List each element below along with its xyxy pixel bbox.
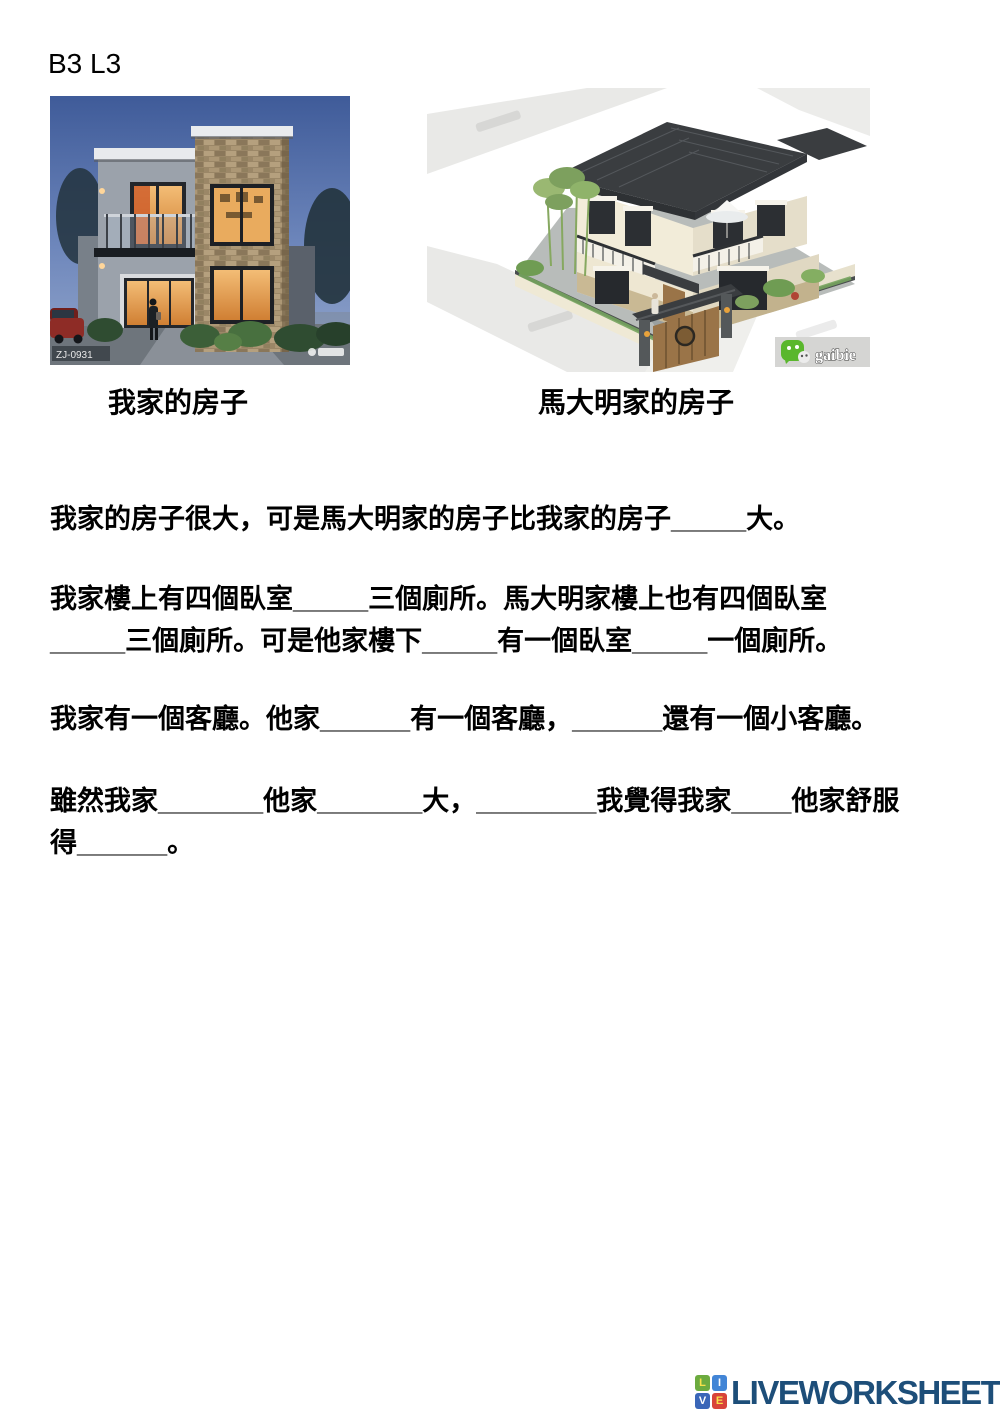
madaming-house-art: gaibie (427, 88, 870, 372)
render-person (652, 293, 659, 314)
passage-line-3: _____三個廁所。可是他家樓下_____有一個臥室_____一個廁所。 (50, 620, 970, 662)
my-house-photo-art: ZJ-0931 (50, 96, 350, 365)
photo-watermark: ZJ-0931 (56, 350, 93, 361)
logo-square-l: L (695, 1375, 710, 1391)
passage-line-2: 我家樓上有四個臥室_____三個廁所。馬大明家樓上也有四個臥室 (50, 578, 970, 620)
madaming-house-render: gaibie (427, 88, 870, 372)
my-house-photo: ZJ-0931 (50, 96, 350, 365)
logo-square-i: I (712, 1375, 727, 1391)
logo-square-e: E (712, 1393, 727, 1409)
worksheet-page: B3 L3 (0, 0, 1000, 1413)
gaibie-brand: gaibie (775, 337, 870, 367)
passage-line-6: 得______。 (50, 822, 970, 864)
liveworksheets-logo[interactable]: L I V E LIVEWORKSHEETS (695, 1373, 1000, 1411)
gaibie-text: gaibie (815, 347, 856, 364)
logo-square-v: V (695, 1393, 710, 1409)
lesson-label: B3 L3 (48, 48, 121, 80)
liveworksheets-grid-icon: L I V E (695, 1375, 727, 1409)
brand-wordmark: LIVEWORKSHEETS (731, 1376, 1000, 1409)
passage-line-5: 雖然我家_______他家_______大，________我覺得我家____他… (50, 780, 970, 822)
passage: 我家的房子很大，可是馬大明家的房子比我家的房子_____大。 我家樓上有四個臥室… (50, 498, 970, 864)
caption-madaming-house: 馬大明家的房子 (538, 381, 734, 421)
photo-logo-mark (308, 348, 344, 356)
balcony-slab (94, 248, 202, 257)
passage-line-4: 我家有一個客廳。他家______有一個客廳，______還有一個小客廳。 (50, 698, 970, 740)
passage-line-1: 我家的房子很大，可是馬大明家的房子比我家的房子_____大。 (50, 498, 970, 540)
caption-my-house: 我家的房子 (108, 381, 248, 421)
